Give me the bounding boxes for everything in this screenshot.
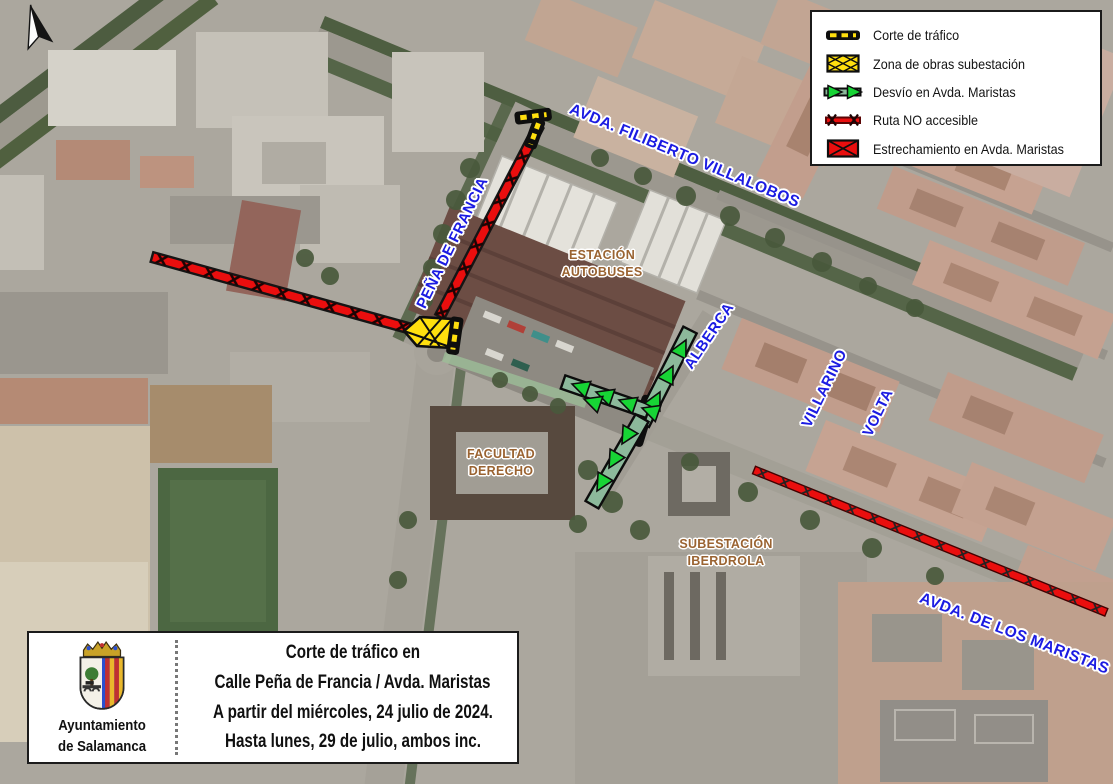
place-label-line: SUBESTACIÓN (658, 536, 794, 553)
legend-label: Estrechamiento en Avda. Maristas (873, 141, 1064, 157)
place-label-facultad-derecho: FACULTAD DERECHO (440, 446, 562, 479)
place-label-subestacion-iberdrola: SUBESTACIÓN IBERDROLA (658, 536, 794, 569)
legend-item-detour: Desvío en Avda. Maristas (822, 78, 1100, 106)
route-not-accessible-icon (822, 112, 864, 128)
place-label-line: IBERDROLA (658, 553, 794, 570)
road-closure-icon (822, 26, 864, 44)
detour-arrow-icon (822, 82, 864, 102)
place-label-line: ESTACIÓN (543, 247, 661, 264)
organization-name: Ayuntamiento de Salamanca (58, 716, 146, 757)
map-legend: Corte de tráfico Zona de obras subestaci… (810, 10, 1102, 166)
notice-line: Calle Peña de Francia / Avda. Maristas (215, 668, 491, 698)
legend-label: Desvío en Avda. Maristas (873, 84, 1016, 100)
organization-line: Ayuntamiento (58, 716, 146, 736)
salamanca-coat-of-arms (71, 640, 133, 716)
notice-line: A partir del miércoles, 24 julio de 2024… (213, 698, 493, 728)
narrowing-icon (822, 139, 864, 159)
legend-item-road-closure: Corte de tráfico (822, 21, 1100, 49)
legend-item-works-zone: Zona de obras subestación (822, 49, 1100, 77)
closure-notice-box: Ayuntamiento de Salamanca Corte de tráfi… (27, 631, 519, 764)
place-label-line: FACULTAD (440, 446, 562, 463)
closure-notice-text: Corte de tráfico en Calle Peña de Franci… (178, 633, 528, 762)
legend-item-route-not-accessible: Ruta NO accesible (822, 106, 1100, 134)
organization-line: de Salamanca (58, 737, 146, 757)
notice-line: Hasta lunes, 29 de julio, ambos inc. (225, 727, 481, 757)
city-council-panel: Ayuntamiento de Salamanca (29, 633, 175, 762)
place-label-line: AUTOBUSES (543, 264, 661, 281)
traffic-closure-map-poster: AVDA. FILIBERTO VILLALOBOS PEÑA DE FRANC… (0, 0, 1113, 784)
place-label-estacion-autobuses: ESTACIÓN AUTOBUSES (543, 247, 661, 280)
legend-label: Zona de obras subestación (873, 56, 1025, 72)
notice-line: Corte de tráfico en (286, 638, 420, 668)
place-label-line: DERECHO (440, 463, 562, 480)
legend-label: Ruta NO accesible (873, 112, 978, 128)
legend-item-narrowing: Estrechamiento en Avda. Maristas (822, 135, 1100, 163)
works-zone-icon (822, 54, 864, 74)
legend-label: Corte de tráfico (873, 27, 959, 43)
